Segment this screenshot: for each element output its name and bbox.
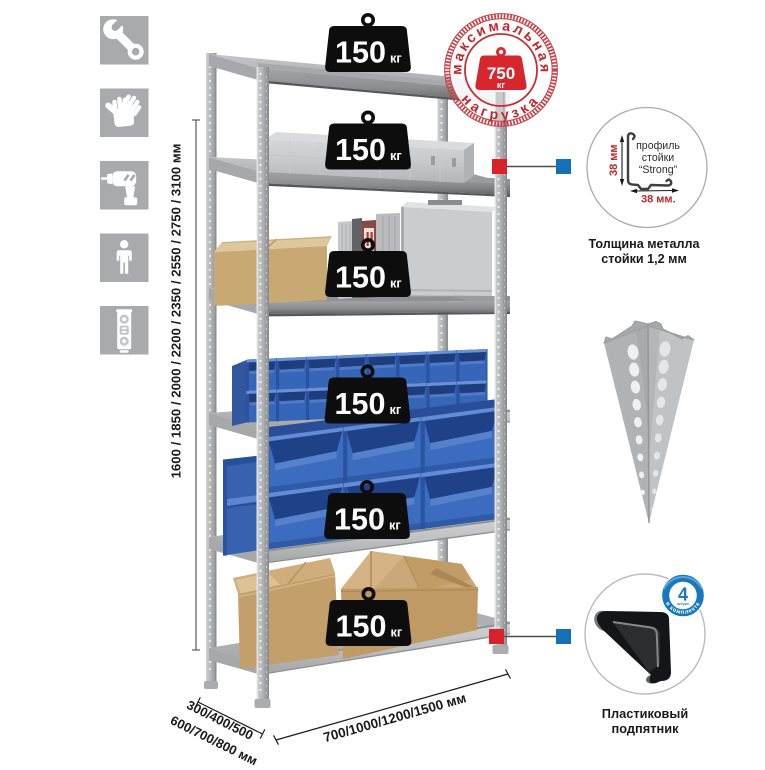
svg-text:штуки: штуки bbox=[677, 602, 689, 606]
svg-text:38 мм: 38 мм bbox=[608, 144, 620, 176]
svg-text:стойки: стойки bbox=[642, 152, 674, 164]
svg-text:Пластиковый: Пластиковый bbox=[602, 706, 688, 721]
svg-text:Толщина металла: Толщина металла bbox=[588, 237, 700, 251]
svg-text:38 мм.: 38 мм. bbox=[641, 194, 676, 206]
svg-text:стойки 1,2 мм: стойки 1,2 мм bbox=[601, 252, 687, 266]
svg-text:1600 / 1850 / 2000 / 2200 / 23: 1600 / 1850 / 2000 / 2200 / 2350 / 2550 … bbox=[169, 144, 184, 479]
svg-text:подпятник: подпятник bbox=[612, 721, 680, 736]
svg-text:профиль: профиль bbox=[636, 140, 680, 152]
svg-text:“Strong”: “Strong” bbox=[639, 164, 678, 176]
svg-text:кг: кг bbox=[497, 80, 506, 90]
